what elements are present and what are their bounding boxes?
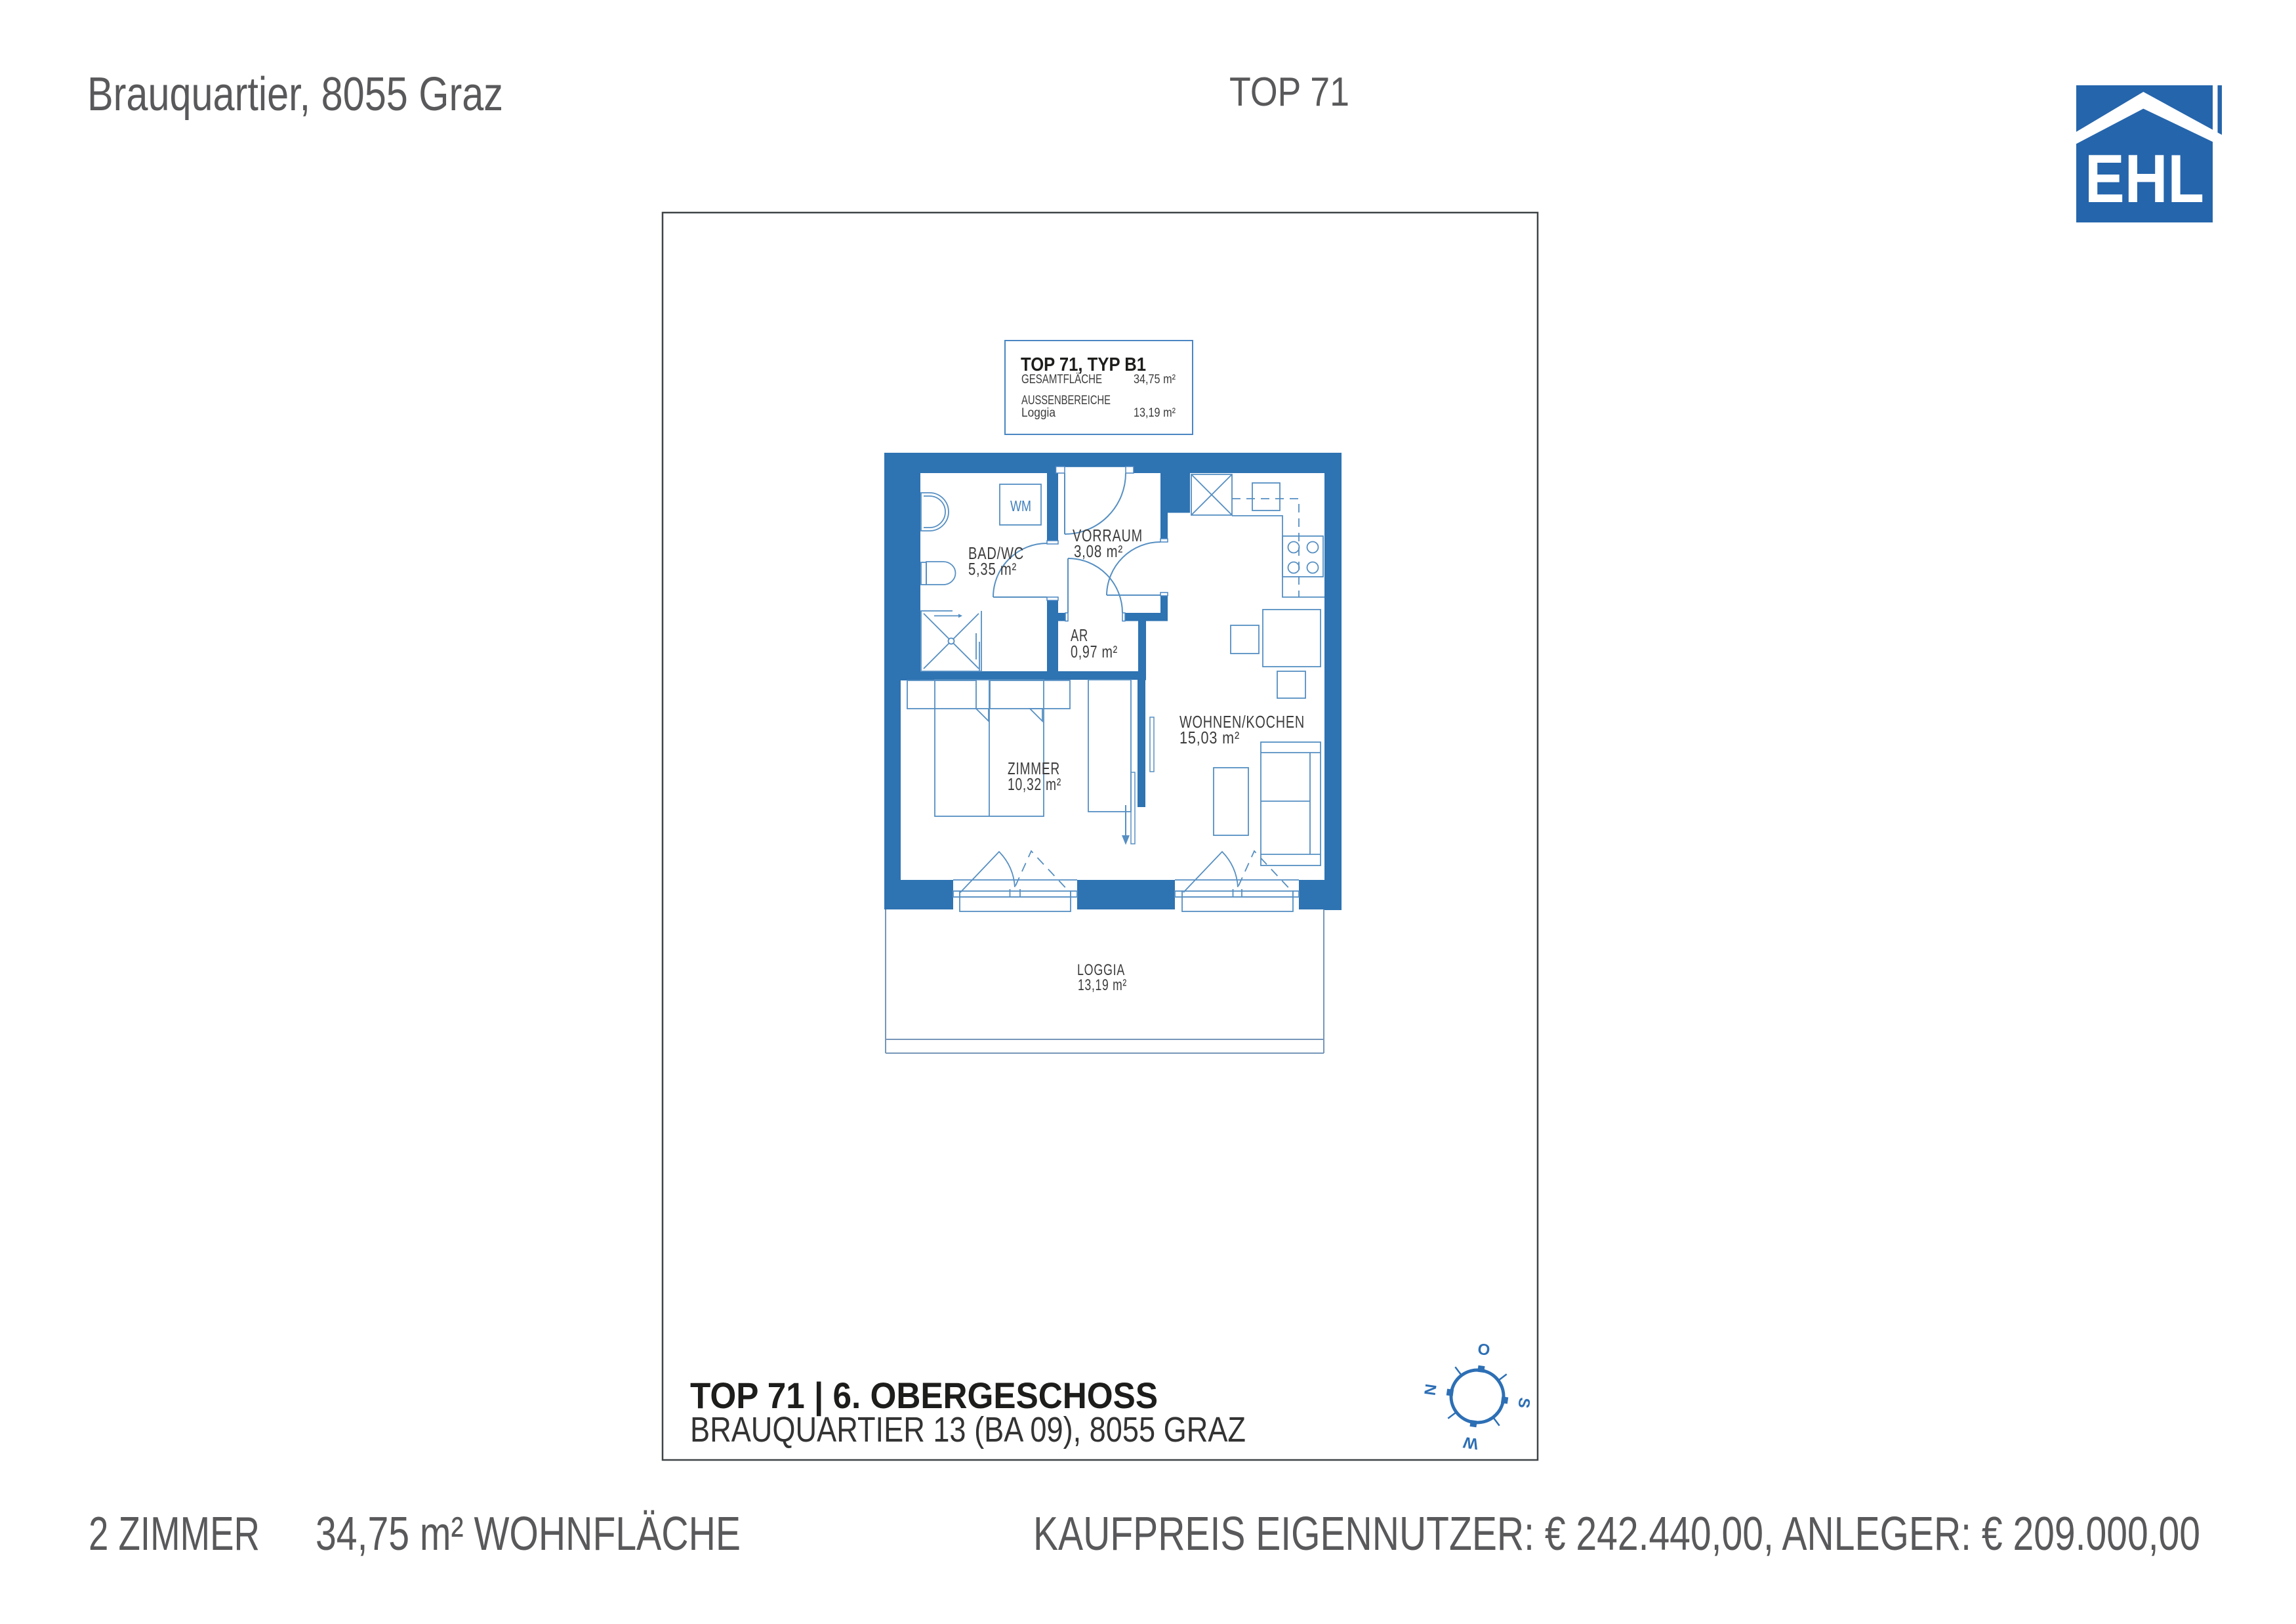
svg-text:O: O (1477, 1341, 1491, 1360)
svg-text:0,97 m²: 0,97 m² (1071, 642, 1118, 661)
svg-text:15,03 m²: 15,03 m² (1179, 728, 1240, 747)
svg-text:TOP 71: TOP 71 (1229, 70, 1349, 115)
svg-text:Loggia: Loggia (1021, 406, 1056, 420)
svg-text:2 ZIMMER: 2 ZIMMER (89, 1508, 260, 1560)
svg-text:KAUFPREIS EIGENNUTZER: € 242.4: KAUFPREIS EIGENNUTZER: € 242.440,00, ANL… (1033, 1508, 2200, 1560)
svg-text:34,75 m²: 34,75 m² (1134, 373, 1176, 386)
svg-text:AUSSENBEREICHE: AUSSENBEREICHE (1021, 394, 1111, 407)
svg-text:WM: WM (1010, 497, 1031, 514)
svg-text:GESAMTFLÄCHE: GESAMTFLÄCHE (1021, 373, 1102, 386)
svg-text:10,32 m²: 10,32 m² (1008, 774, 1061, 794)
svg-text:13,19 m²: 13,19 m² (1134, 406, 1176, 420)
svg-text:Brauquartier, 8055 Graz: Brauquartier, 8055 Graz (87, 68, 503, 121)
svg-text:EHL: EHL (2085, 141, 2204, 217)
svg-text:W: W (1462, 1433, 1480, 1453)
svg-text:3,08 m²: 3,08 m² (1074, 541, 1123, 561)
svg-text:34,75 m² WOHNFLÄCHE: 34,75 m² WOHNFLÄCHE (316, 1508, 741, 1560)
svg-text:13,19 m²: 13,19 m² (1078, 976, 1127, 994)
svg-text:5,35 m²: 5,35 m² (968, 559, 1017, 579)
svg-text:BRAUQUARTIER 13 (BA 09), 8055: BRAUQUARTIER 13 (BA 09), 8055 GRAZ (690, 1410, 1246, 1449)
